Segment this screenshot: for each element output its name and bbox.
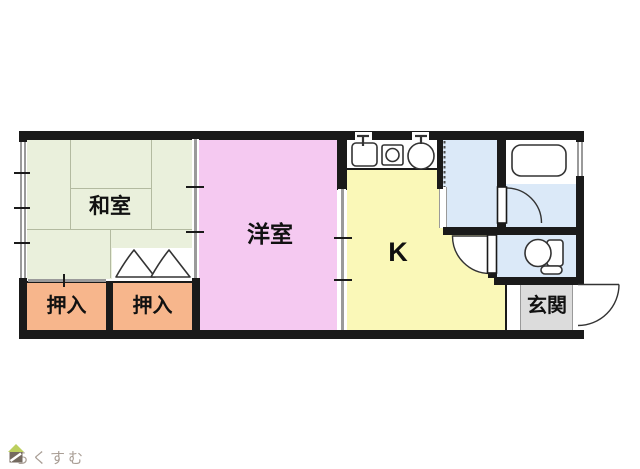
closet-bifold-door xyxy=(116,250,190,277)
logo-text: らくすむ xyxy=(14,444,86,468)
gas-stove-icon xyxy=(382,145,403,165)
label-oshiire-left: 押入 xyxy=(27,296,106,316)
toilet-door-swing xyxy=(453,235,497,274)
toilet-bowl-icon xyxy=(525,240,563,275)
label-genkan: 玄関 xyxy=(526,296,568,316)
fixtures-overlay xyxy=(0,0,640,469)
wash-basin-icon xyxy=(408,135,434,169)
bathtub-icon xyxy=(512,145,566,176)
label-washitsu: 和室 xyxy=(70,196,150,217)
logo: らくすむ xyxy=(8,444,86,468)
label-yoshitsu: 洋室 xyxy=(245,223,295,246)
bathroom-door-swing xyxy=(498,187,542,223)
floorplan-image: 和室 押入 押入 洋室 K 玄関 らくすむ xyxy=(0,0,640,469)
entrance-door-swing xyxy=(578,285,619,326)
label-kitchen: K xyxy=(384,239,412,266)
label-oshiire-right: 押入 xyxy=(113,296,192,316)
house-icon xyxy=(8,444,24,463)
